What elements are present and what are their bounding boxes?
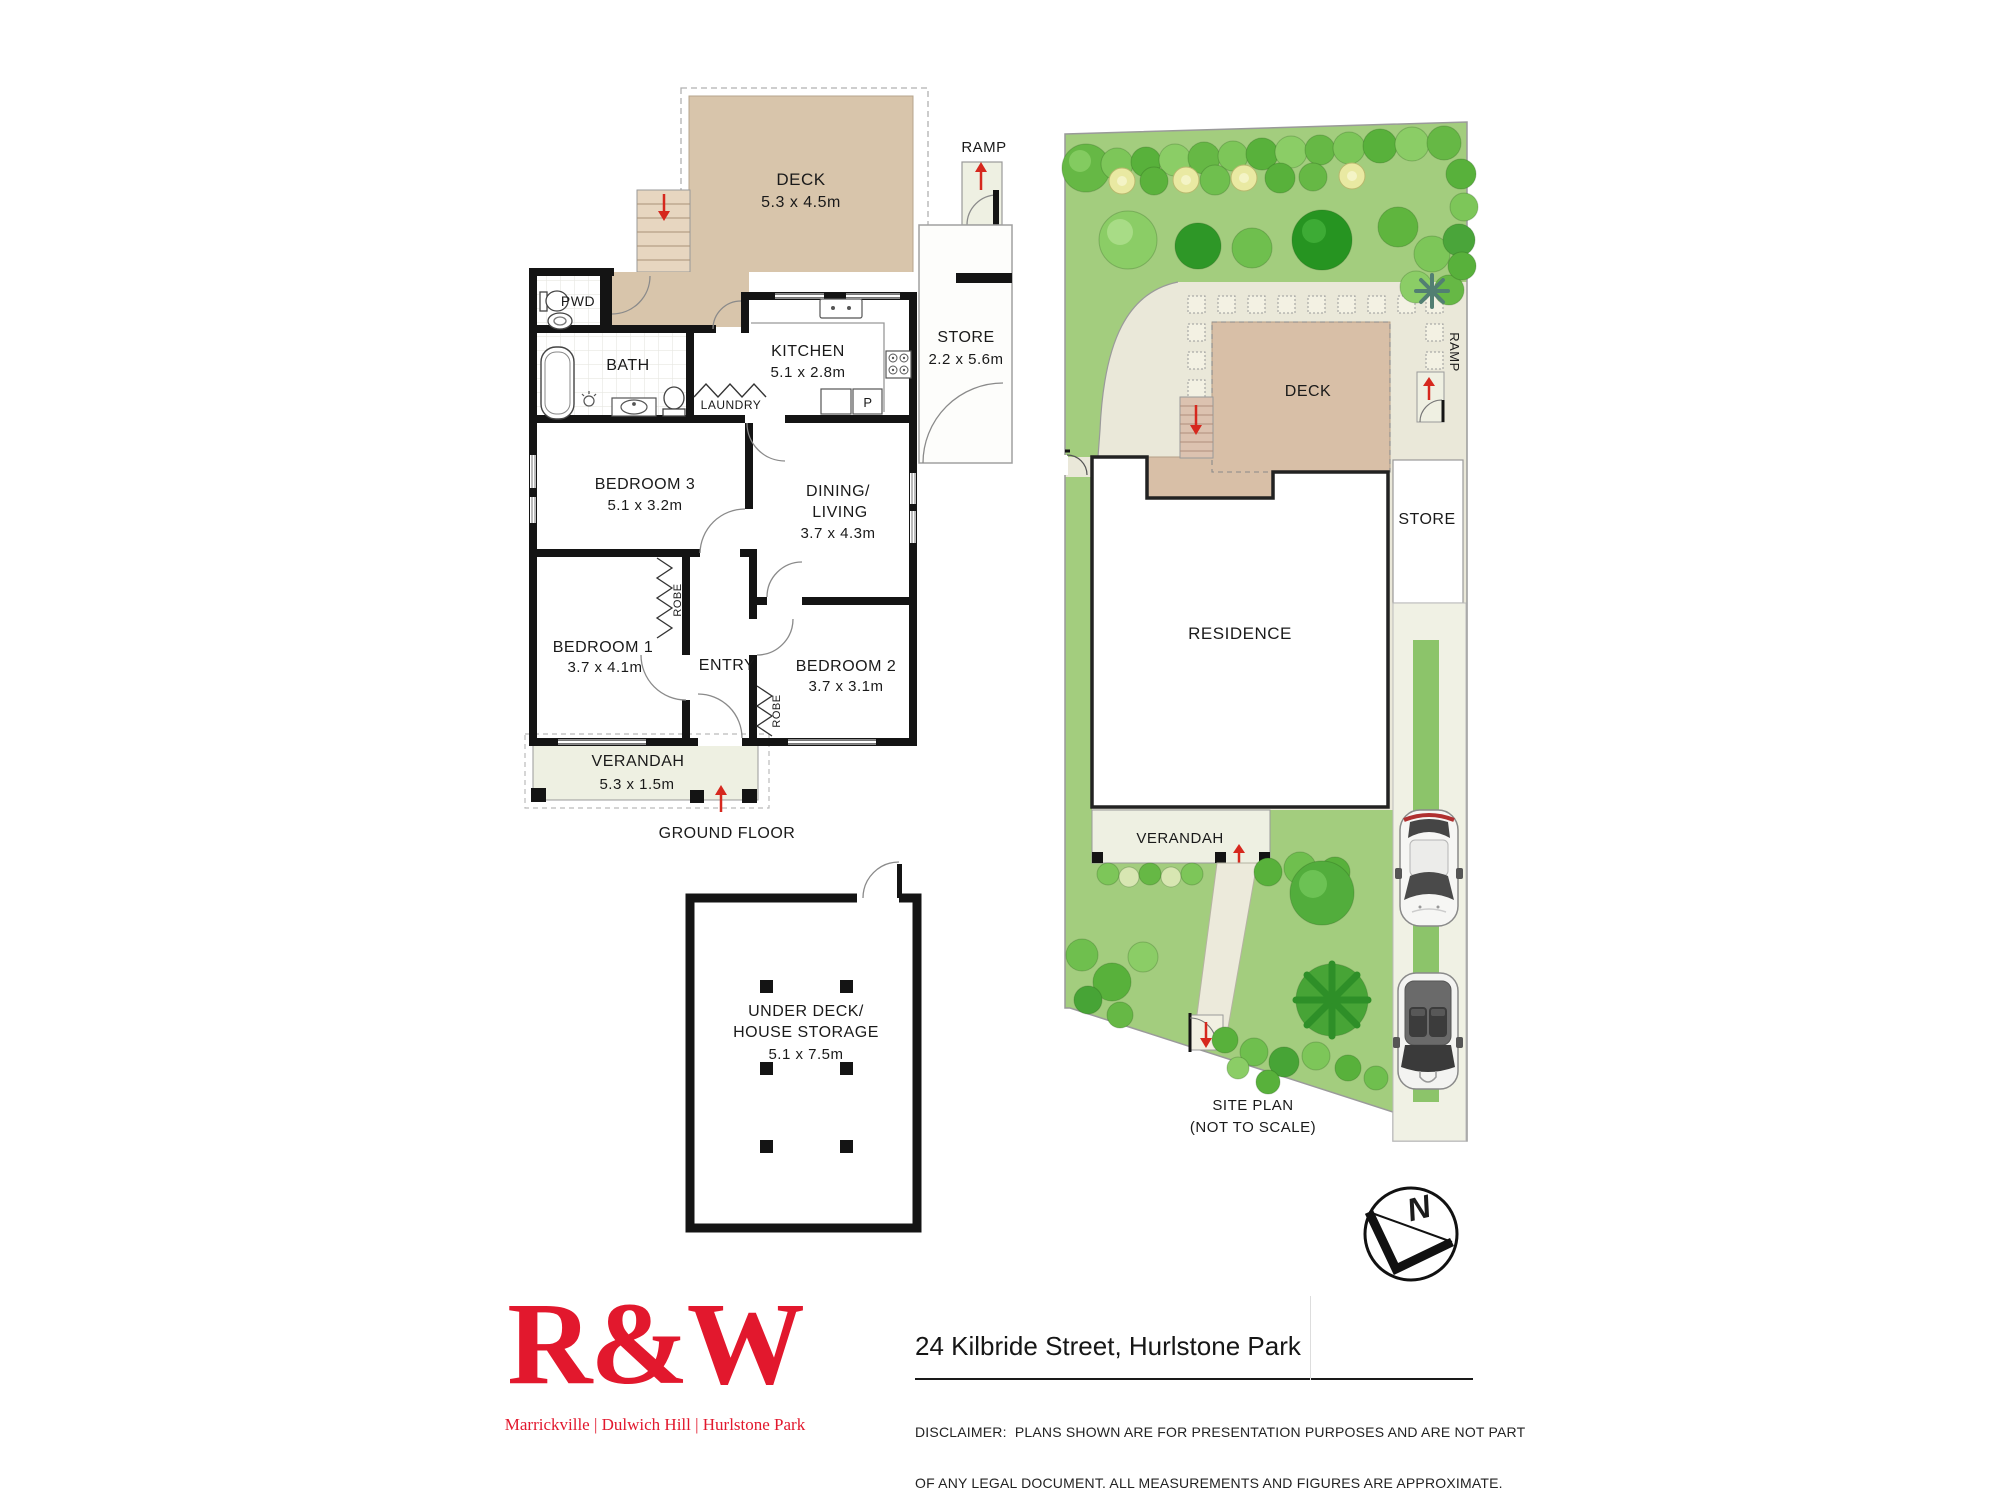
vanity-icon bbox=[612, 398, 656, 416]
page: DECK 5.3 x 4.5m RAMP STORE 2.2 x 5.6m PW… bbox=[0, 0, 2000, 1500]
ground-floor-plan: DECK 5.3 x 4.5m RAMP STORE 2.2 x 5.6m PW… bbox=[525, 88, 1012, 1228]
site-deck-stairs bbox=[1180, 397, 1213, 458]
storage-label-2: HOUSE STORAGE bbox=[733, 1024, 879, 1041]
site-store-label: STORE bbox=[1398, 511, 1455, 528]
dining-label-1: DINING/ bbox=[806, 483, 870, 500]
robe1-label: ROBE bbox=[672, 583, 684, 616]
footer-vertical-line bbox=[1310, 1296, 1311, 1380]
disclaimer-line-1: DISCLAIMER: PLANS SHOWN ARE FOR PRESENTA… bbox=[915, 1424, 1525, 1441]
storage-label-1: UNDER DECK/ bbox=[748, 1003, 864, 1020]
dining-label-2: LIVING bbox=[812, 504, 867, 521]
bedroom1-label: BEDROOM 1 bbox=[553, 639, 654, 656]
store-dims: 2.2 x 5.6m bbox=[928, 351, 1003, 368]
footer-divider bbox=[915, 1378, 1473, 1380]
pwd-label: PWD bbox=[561, 293, 595, 309]
bedroom3-dims: 5.1 x 3.2m bbox=[607, 497, 682, 514]
bath-label: BATH bbox=[606, 357, 649, 374]
kitchen-label: KITCHEN bbox=[771, 343, 845, 360]
north-compass-icon: N bbox=[1365, 1188, 1457, 1280]
bedroom3-label: BEDROOM 3 bbox=[595, 476, 696, 493]
deck-dims: 5.3 x 4.5m bbox=[761, 194, 841, 211]
bedroom2-dims: 3.7 x 3.1m bbox=[808, 678, 883, 695]
robe2-label: ROBE bbox=[771, 694, 783, 727]
laundry-label: LAUNDRY bbox=[701, 398, 762, 412]
site-store bbox=[1393, 460, 1463, 603]
entry-label: ENTRY bbox=[699, 657, 755, 674]
agency-logo: R&W bbox=[498, 1284, 812, 1404]
convertible-car-icon bbox=[1393, 973, 1463, 1089]
ground-floor-caption: GROUND FLOOR bbox=[659, 825, 796, 842]
deck-landing bbox=[610, 272, 749, 327]
site-plan-caption-1: SITE PLAN bbox=[1212, 1097, 1293, 1114]
site-verandah-label: VERANDAH bbox=[1136, 830, 1223, 847]
site-plan: DECK RESIDENCE STORE RAMP VERANDAH SITE … bbox=[1062, 122, 1478, 1280]
property-address: 24 Kilbride Street, Hurlstone Park bbox=[915, 1331, 1301, 1362]
agency-tagline: Marrickville | Dulwich Hill | Hurlstone … bbox=[478, 1415, 832, 1435]
storage-dims: 5.1 x 7.5m bbox=[768, 1046, 843, 1063]
dining-dims: 3.7 x 4.3m bbox=[800, 525, 875, 542]
floorplan-canvas: DECK 5.3 x 4.5m RAMP STORE 2.2 x 5.6m PW… bbox=[0, 0, 2000, 1500]
site-deck-label: DECK bbox=[1285, 383, 1331, 400]
site-ramp-label: RAMP bbox=[1447, 332, 1462, 372]
ramp-corridor bbox=[962, 162, 1002, 225]
bedroom2-label: BEDROOM 2 bbox=[796, 658, 897, 675]
palm-large-icon bbox=[1296, 964, 1368, 1036]
side-gate bbox=[1063, 455, 1068, 475]
car-icon bbox=[1395, 810, 1463, 926]
bedroom1-dims: 3.7 x 4.1m bbox=[567, 659, 642, 676]
verandah-label: VERANDAH bbox=[592, 753, 685, 770]
kitchen-dims: 5.1 x 2.8m bbox=[770, 364, 845, 381]
under-deck-storage bbox=[690, 862, 917, 1228]
site-plan-caption-2: (NOT TO SCALE) bbox=[1190, 1119, 1316, 1136]
store-label: STORE bbox=[937, 329, 994, 346]
palm-small-icon bbox=[1416, 275, 1448, 307]
site-residence-label: RESIDENCE bbox=[1188, 624, 1292, 643]
site-ramp bbox=[1417, 372, 1444, 422]
bathtub-icon bbox=[541, 347, 574, 419]
bath-toilet-icon bbox=[663, 387, 685, 416]
disclaimer-text: DISCLAIMER: PLANS SHOWN ARE FOR PRESENTA… bbox=[915, 1390, 1525, 1500]
verandah-dims: 5.3 x 1.5m bbox=[599, 776, 674, 793]
deck-label: DECK bbox=[776, 170, 825, 189]
fridge-icon bbox=[821, 389, 851, 414]
disclaimer-line-2: OF ANY LEGAL DOCUMENT. ALL MEASUREMENTS … bbox=[915, 1475, 1525, 1492]
ramp-label: RAMP bbox=[961, 139, 1006, 156]
deck-stairs bbox=[637, 190, 690, 272]
pantry-label: P bbox=[863, 395, 872, 410]
